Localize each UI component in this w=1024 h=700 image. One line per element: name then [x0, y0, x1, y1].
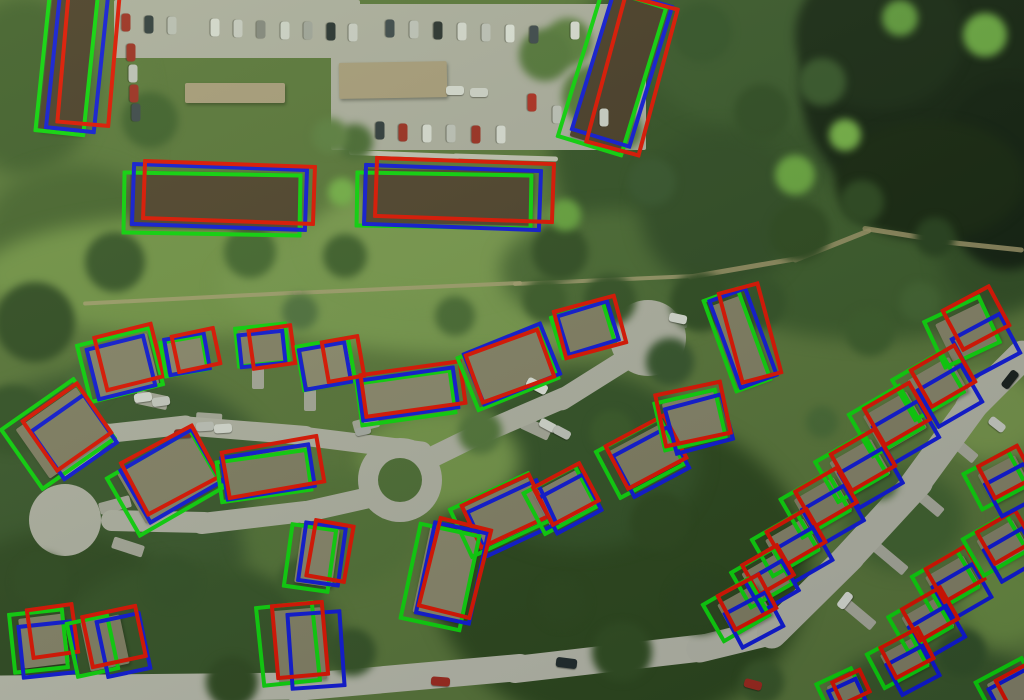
car: [571, 21, 580, 39]
detection-box-red: [270, 600, 330, 680]
roundabout-island: [378, 458, 422, 502]
car: [349, 23, 358, 41]
tree-canopy: [628, 158, 676, 206]
car: [399, 123, 408, 141]
car: [530, 25, 539, 43]
tree-canopy: [435, 296, 475, 336]
detection-box-red: [55, 0, 122, 128]
tree-canopy: [846, 308, 894, 356]
parking-pad: [304, 389, 316, 411]
tree-canopy: [806, 406, 838, 438]
car: [423, 124, 432, 142]
tree-canopy: [734, 84, 790, 140]
tree-canopy: [536, 576, 588, 628]
car: [304, 21, 313, 39]
car: [482, 23, 491, 41]
tree-canopy: [328, 178, 356, 206]
car: [281, 21, 290, 39]
building-roof: [339, 61, 448, 99]
culdesac-bulb: [29, 484, 101, 556]
car: [211, 18, 220, 36]
car: [430, 676, 450, 686]
car: [257, 20, 266, 38]
tree-canopy: [882, 0, 918, 36]
ground-vegetation-patch: [640, 130, 800, 290]
tree-canopy: [840, 180, 884, 224]
car: [386, 19, 395, 37]
car: [528, 93, 537, 111]
car: [214, 423, 233, 433]
tree-canopy: [829, 119, 861, 151]
detection-box-red: [80, 603, 148, 669]
aerial-detection-image: [0, 0, 1024, 700]
detection-box-red: [141, 158, 317, 225]
tree-canopy: [646, 338, 694, 386]
tree-canopy: [312, 118, 348, 154]
tree-canopy: [963, 13, 1007, 57]
car: [132, 103, 141, 121]
tree-canopy: [14, 554, 70, 610]
tree-canopy: [532, 224, 588, 280]
car: [472, 125, 481, 143]
tree-canopy: [206, 656, 258, 700]
detection-box-red: [169, 326, 222, 375]
car: [130, 84, 139, 102]
building-roof: [185, 83, 285, 103]
tree-canopy: [0, 282, 75, 362]
tree-canopy: [775, 155, 815, 195]
car: [497, 125, 506, 143]
car: [446, 86, 464, 95]
tree-canopy: [85, 232, 145, 292]
tree-canopy: [770, 202, 830, 262]
tree-canopy: [519, 29, 571, 81]
car: [168, 16, 177, 34]
tree-canopy: [915, 217, 955, 257]
tree-canopy: [630, 492, 690, 552]
tree-canopy: [592, 622, 652, 682]
car: [447, 124, 456, 142]
detection-box-red: [246, 323, 297, 371]
tree-canopy: [146, 556, 198, 608]
car: [122, 13, 131, 31]
car: [458, 22, 467, 40]
car: [327, 22, 336, 40]
car: [151, 395, 170, 406]
car: [127, 43, 136, 61]
car: [434, 21, 443, 39]
car: [129, 64, 138, 82]
car: [145, 15, 154, 33]
car: [376, 121, 385, 139]
tree-canopy: [323, 234, 367, 278]
car: [470, 88, 488, 97]
tree-canopy: [798, 58, 846, 106]
tree-canopy: [458, 410, 502, 454]
detection-box-red: [372, 156, 555, 224]
car: [133, 391, 152, 402]
car: [196, 421, 215, 431]
car: [234, 19, 243, 37]
car: [506, 24, 515, 42]
tree-canopy: [672, 2, 732, 62]
car: [410, 20, 419, 38]
